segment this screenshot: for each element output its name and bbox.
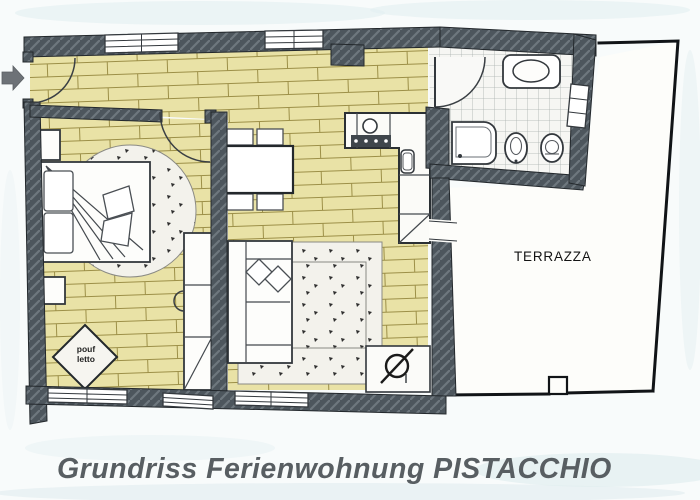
wall-bathroom-west [426, 107, 449, 170]
terrace-label: TERRAZZA [514, 249, 592, 264]
window-bedroom-2 [163, 393, 213, 409]
window-living [235, 391, 308, 407]
entry-jamb-top [23, 52, 33, 62]
wardrobe [184, 233, 212, 390]
scanned-floor-plan-page: TERRAZZA pouf letto [0, 0, 700, 500]
dining-chair [257, 129, 283, 145]
window-bathroom [567, 84, 589, 128]
pillow [44, 171, 73, 211]
dining-chair [227, 129, 253, 145]
terrace-step [549, 377, 567, 394]
wall-niche [331, 44, 364, 66]
toilet [541, 134, 563, 162]
sofa-cushion-lines [246, 241, 292, 363]
dining-chair [227, 194, 253, 210]
utility-closet [366, 346, 430, 392]
window-bedroom-1 [48, 388, 127, 404]
utility-closet-outline [366, 346, 430, 392]
terrace-door-opening [429, 219, 457, 243]
window-top-1 [105, 33, 178, 53]
pouf-label-2: letto [77, 354, 95, 364]
window-top-2 [265, 30, 323, 49]
dining-table [224, 146, 293, 193]
bidet-drain [515, 160, 518, 163]
washbasin [513, 60, 549, 82]
page-title: Grundriss Ferienwohnung PISTACCHIO [57, 453, 612, 485]
wall-bedroom-divider [211, 112, 227, 392]
shower [452, 122, 496, 164]
shower-drain [458, 154, 462, 158]
dining-chair [257, 194, 283, 210]
pillow [44, 213, 73, 253]
floor-plan-drawing: TERRAZZA pouf letto [0, 0, 700, 500]
pouf-label-1: pouf [77, 344, 96, 354]
kitchen-hob [363, 119, 377, 133]
